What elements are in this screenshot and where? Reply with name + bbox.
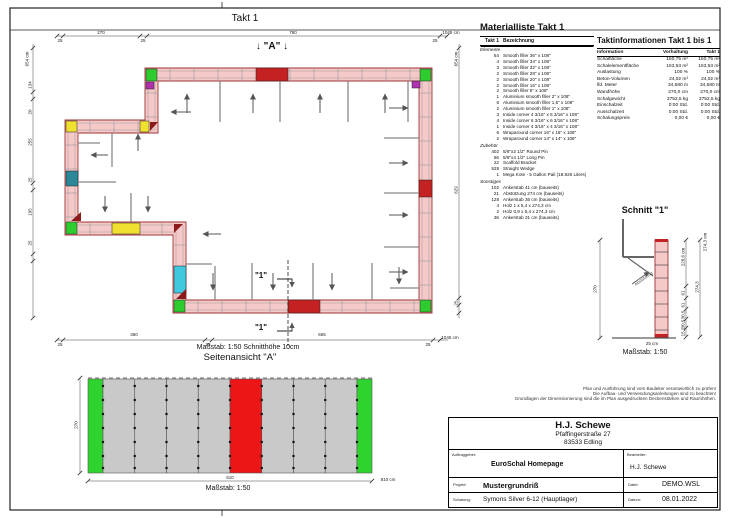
dim-label: 274,3 (695, 281, 700, 292)
dim-label: 30,5 (681, 311, 686, 320)
dim-label: 270 (593, 285, 598, 293)
floorplan-bracing-stubs (78, 81, 419, 300)
elevation-scale: Maßstab: 1:50 (158, 485, 298, 492)
titleblock-company-row: H.J. Schewe Pfaffingerstraße 27 83533 Ed… (449, 418, 717, 450)
dim-label: 780 (289, 30, 297, 35)
auftraggeber-value: EuroSchal Homepage (491, 461, 563, 468)
datei-cell: Datei: DEMO.WSL (624, 478, 717, 493)
dim-label: 25 (57, 342, 62, 347)
dim-label: 25 (57, 38, 62, 43)
disclaimer-text: Plan und Ausführung sind vom Bauleiter v… (420, 386, 716, 402)
dim-label: 195 (28, 208, 33, 216)
company-city: 83533 Edling (449, 439, 717, 447)
dim-label: 1045 cm (442, 30, 459, 35)
dim-label: 25 (432, 38, 437, 43)
dim-label: 134 (28, 81, 33, 89)
plan-sheet: Takt 1 ↓ "A" ↓ 25 270 25 780 25 1045 cm … (0, 0, 730, 518)
dim-label: 270 (97, 30, 105, 35)
auftraggeber-label: Auftraggeber: (452, 452, 476, 457)
datum-value: 08.01.2022 (662, 496, 697, 503)
schnitt-title: Schnitt "1" (600, 205, 690, 215)
dim-label: 228,6 cm (681, 248, 686, 267)
taktinfo-col-information: Information (597, 50, 652, 55)
taktinfo-row: lfd. Meter34,580 m34,580 m (597, 83, 720, 90)
dim-label: 255 (28, 138, 33, 146)
materials-col-qty: Takt 1 (480, 38, 499, 44)
dim-label: 15,2 (681, 328, 686, 337)
dim-label: 25 (425, 342, 430, 347)
section-marker-a: ↓ "A" ↓ (232, 41, 312, 52)
titleblock: H.J. Schewe Pfaffingerstraße 27 83533 Ed… (448, 417, 718, 508)
takt-band-title: Takt 1 (160, 13, 330, 24)
dim-label: 61 (681, 302, 686, 307)
dim-label: 654 cm (454, 52, 459, 67)
taktinfo-col-takt1: Takt 1 (688, 50, 720, 55)
schalung-value: Symons Silver 6-12 (Hauptlager) (483, 496, 577, 503)
dim-label: 25 (454, 300, 459, 305)
elevation-drawing (80, 378, 372, 481)
dim-label: 61 (681, 290, 686, 295)
dim-label: 25 (28, 177, 33, 182)
dim-label: 360 (130, 332, 138, 337)
taktinfo-rows: Schalfläche160,75 m²160,75 m²Schalelemen… (597, 57, 720, 123)
cut-marker-1-bottom: "1" (255, 323, 267, 332)
auftraggeber-cell: Auftraggeber: EuroSchal Homepage (449, 450, 623, 478)
cut-marker-1-top: "1" (255, 271, 267, 280)
taktinfo-row: Schalfläche160,75 m²160,75 m² (597, 57, 720, 64)
bearbeiter-label: Bearbeiter: (627, 452, 647, 457)
projekt-label: Projekt: (453, 482, 467, 487)
dim-label: 629 (454, 186, 459, 194)
dim-label: 25 (28, 240, 33, 245)
bearbeiter-cell: Bearbeiter: H.J. Schewe (624, 450, 717, 478)
schalung-label: Schalung: (453, 497, 471, 502)
elevation-title: Seitenansicht "A" (150, 352, 330, 363)
taktinfo-header: Information Vorhaltung Takt 1 (597, 48, 720, 57)
schnitt-scale: Maßstab: 1:50 (600, 349, 690, 356)
dim-label: 20 (28, 109, 33, 114)
datum-cell: Datum: 08.01.2022 (624, 493, 717, 507)
taktinfo-row: Wandhöhe270,0 cm270,0 cm (597, 90, 720, 97)
materials-header: Takt 1 Bezeichnung (480, 36, 594, 46)
taktinfo-table: Taktinformationen Takt 1 bis 1 Informati… (597, 36, 720, 123)
dim-label: 274,3 cm (703, 233, 708, 252)
projekt-value: Mustergrundriß (483, 481, 538, 490)
company-street: Pfaffingerstraße 27 (449, 431, 717, 439)
taktinfo-col-vorhaltung: Vorhaltung (652, 50, 688, 55)
floorplan-special-panels (66, 68, 432, 313)
materials-list: Materialliste Takt 1 Takt 1 Bezeichnung … (480, 22, 594, 221)
dim-label: 25 (140, 38, 145, 43)
materials-row: 36Ankerstab 31 cm (bauseits) (480, 215, 594, 221)
dim-label: 810 cm (381, 477, 396, 482)
datum-label: Datum: (628, 497, 641, 502)
dim-label: 1045 cm (441, 335, 458, 340)
dim-label: 270 (74, 421, 79, 429)
company-name: H.J. Schewe (449, 418, 717, 431)
materials-col-name: Bezeichnung (499, 38, 534, 44)
materials-row: 1Mega Kote - 5 Gallon Pail (18.926 Liter… (480, 172, 594, 178)
taktinfo-row: Einschalzeit0:00 Std.0:00 Std. (597, 103, 720, 110)
dim-label: 654 cm (25, 52, 30, 67)
taktinfo-row: Auslastung100 %100 % (597, 70, 720, 77)
plan-scale-caption: Maßstab: 1:50 Schnitthöhe 10cm (158, 344, 338, 351)
taktinfo-row: Schalungspreis0,00 €0,00 € (597, 116, 720, 123)
materials-row: 2Wraparound corner 14" x 14" x 108" (480, 136, 594, 142)
bearbeiter-value: H.J. Schewe (630, 464, 667, 471)
dim-label: 25 cm (646, 341, 658, 346)
taktinfo-title: Taktinformationen Takt 1 bis 1 (597, 36, 720, 45)
schalung-cell: Schalung: Symons Silver 6-12 (Hauptlager… (449, 493, 623, 507)
dim-label: 810 (226, 475, 234, 480)
floorplan-walls (65, 68, 432, 313)
datei-value: DEMO.WSL (662, 481, 700, 488)
datei-label: Datei: (628, 482, 638, 487)
materials-title: Materialliste Takt 1 (480, 22, 594, 33)
dim-label: 665 (318, 332, 326, 337)
projekt-cell: Projekt: Mustergrundriß (449, 478, 623, 493)
disclaimer-line: Grundlagen der Dimensionierung sind die … (420, 396, 716, 401)
materials-rows: Elemente54Smooth filler 36" x 108"4Smoot… (480, 48, 594, 221)
